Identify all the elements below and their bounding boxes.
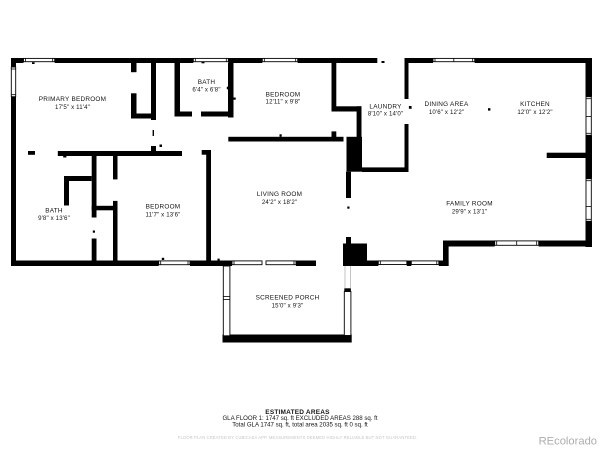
svg-text:12'0" x 12'2": 12'0" x 12'2" (517, 109, 552, 116)
svg-text:8'10" x 14'0": 8'10" x 14'0" (368, 110, 403, 117)
svg-text:FLOOR PLAN CREATED BY CUBICASA: FLOOR PLAN CREATED BY CUBICASA APP. MEAS… (178, 435, 417, 440)
svg-text:15'0" x 9'3": 15'0" x 9'3" (272, 303, 304, 310)
svg-text:REcolorado: REcolorado (539, 436, 597, 448)
svg-text:12'11" x 9'8": 12'11" x 9'8" (266, 99, 301, 106)
svg-text:10'6" x 12'2": 10'6" x 12'2" (429, 109, 464, 116)
svg-text:11'7" x 13'6": 11'7" x 13'6" (146, 211, 181, 218)
svg-text:PRIMARY BEDROOM: PRIMARY BEDROOM (39, 96, 106, 103)
svg-text:SCREENED PORCH: SCREENED PORCH (256, 295, 320, 302)
svg-text:FAMILY ROOM: FAMILY ROOM (446, 200, 493, 207)
svg-text:BATH: BATH (45, 207, 63, 214)
svg-text:BATH: BATH (198, 79, 216, 86)
svg-text:6'4" x 6'8": 6'4" x 6'8" (192, 87, 220, 94)
svg-text:Total GLA 1747 sq. ft, total a: Total GLA 1747 sq. ft, total area 2035 s… (232, 421, 368, 428)
svg-text:9'8" x 13'6": 9'8" x 13'6" (38, 215, 70, 222)
svg-text:17'5" x 11'4": 17'5" x 11'4" (55, 104, 90, 111)
svg-text:BEDROOM: BEDROOM (266, 91, 301, 98)
svg-text:24'2" x 18'2": 24'2" x 18'2" (262, 199, 297, 206)
svg-text:KITCHEN: KITCHEN (520, 101, 550, 108)
svg-text:BEDROOM: BEDROOM (146, 203, 181, 210)
svg-text:29'9" x 13'1": 29'9" x 13'1" (452, 208, 487, 215)
svg-text:DINING AREA: DINING AREA (425, 101, 469, 108)
svg-text:LIVING ROOM: LIVING ROOM (257, 191, 302, 198)
